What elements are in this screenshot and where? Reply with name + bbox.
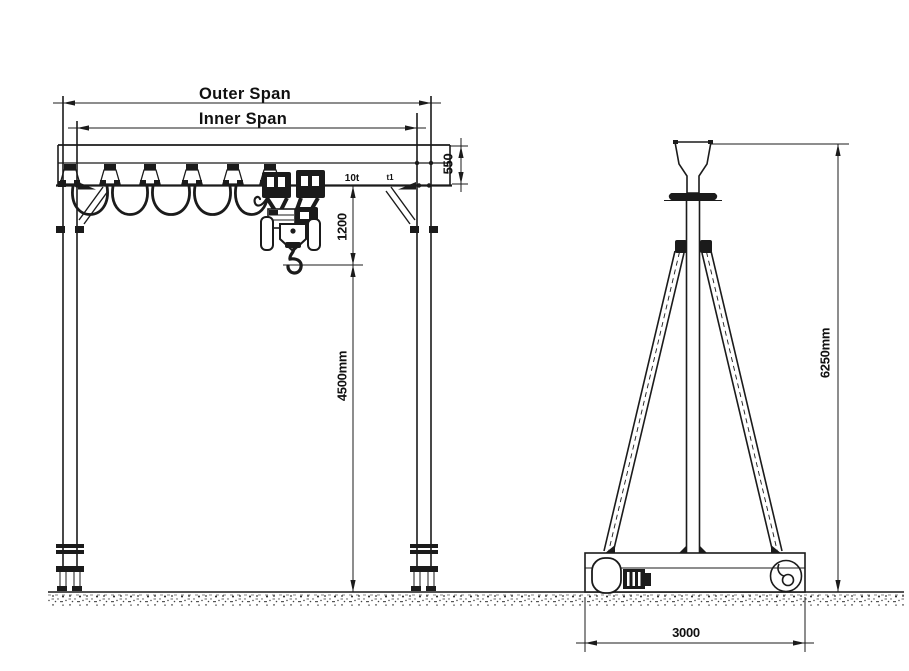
inner-span-dimension: Inner Span: [68, 110, 426, 131]
overall-height-dimension: 6250mm: [711, 144, 849, 592]
inner-span-label: Inner Span: [199, 110, 287, 128]
base-frame: [585, 553, 805, 593]
hook-to-rail-value: 1200: [335, 213, 350, 241]
girder-depth-dimension: 550: [441, 138, 469, 192]
overall-height-value: 6250mm: [818, 328, 833, 378]
gantry-crane-drawing: Outer Span Inner Span 550 10t t1: [0, 0, 909, 671]
side-view: [585, 140, 805, 593]
capacity-label: 10t: [345, 173, 360, 184]
right-leg: [410, 96, 438, 591]
girder-depth-value: 550: [441, 154, 456, 175]
left-wheel-fork: [56, 566, 84, 591]
crane-hook: [288, 248, 301, 273]
festoon-hangers: [60, 164, 280, 185]
lifting-height-value: 4500mm: [335, 351, 350, 401]
corner-gusset-right: [386, 187, 415, 224]
end-stop-label: t1: [386, 173, 394, 182]
base-length-value: 3000: [672, 625, 700, 640]
front-view-dimensions: Outer Span Inner Span 550 10t t1: [53, 85, 468, 592]
front-view: [56, 96, 452, 591]
diagonal-braces: [604, 251, 782, 554]
outer-span-dimension: Outer Span: [53, 85, 441, 106]
right-wheel-fork: [410, 566, 438, 591]
girder-end-section: [664, 140, 722, 201]
drawing-canvas: Outer Span Inner Span 550 10t t1: [0, 0, 909, 671]
ground: [48, 592, 904, 606]
outer-span-label: Outer Span: [199, 85, 291, 103]
